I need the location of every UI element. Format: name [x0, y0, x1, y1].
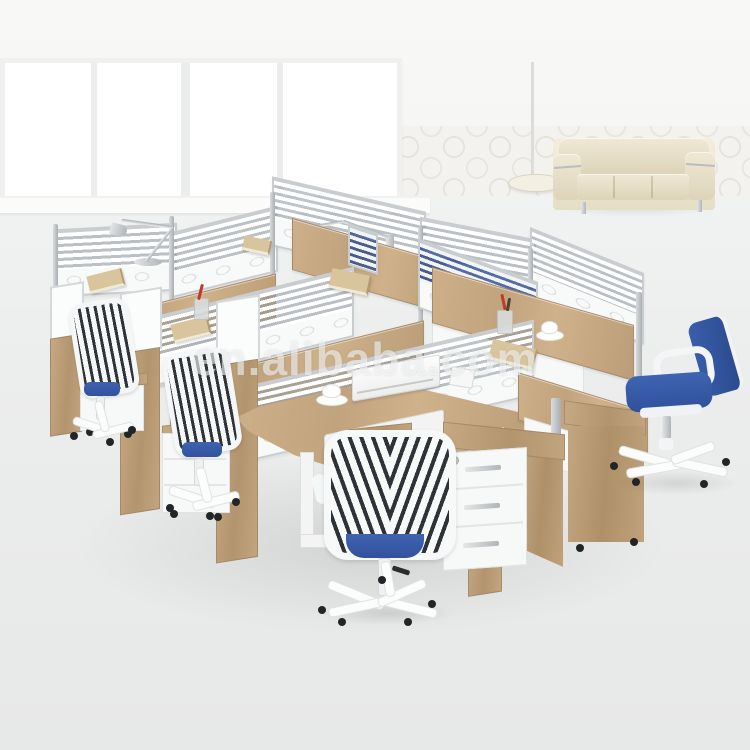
chair-lever: [392, 565, 411, 575]
caster: [378, 576, 386, 584]
pen-cup: [194, 298, 209, 320]
coffee-cup: [541, 321, 558, 334]
chair-seat: [346, 534, 424, 558]
lamp-head: [109, 222, 128, 238]
chair-stem-cover: [659, 438, 673, 450]
floor-lamp-pole: [531, 62, 534, 180]
lamp-arm: [145, 226, 174, 263]
lamp-arm: [121, 219, 173, 229]
coffee-cup: [322, 384, 341, 398]
task-chair-blue: [610, 312, 740, 502]
sofa-seam: [651, 176, 653, 198]
caster: [610, 462, 618, 470]
window-mullion: [91, 63, 97, 199]
sofa-seam: [613, 176, 615, 198]
caster: [576, 544, 584, 552]
sofa: [553, 138, 715, 210]
caster: [232, 498, 240, 506]
caster: [206, 512, 214, 520]
caster: [128, 426, 136, 434]
caster: [404, 618, 412, 626]
sofa-leg: [581, 202, 586, 214]
chair-seat: [84, 382, 120, 396]
caster: [70, 432, 78, 440]
watermark-text: en.alibaba.com: [192, 332, 538, 386]
three-drawer-pedestal: [443, 428, 567, 570]
sofa-leg: [697, 200, 702, 212]
desk-lamp-left: [96, 196, 192, 272]
caster: [722, 458, 730, 466]
caster: [166, 504, 174, 512]
caster: [338, 618, 346, 626]
pen-cup: [497, 310, 513, 334]
caster: [106, 438, 114, 446]
caster: [318, 606, 326, 614]
window-mullion: [181, 63, 190, 199]
task-chair-white: [70, 298, 160, 446]
window: [0, 58, 402, 214]
product-photo-scene: en.alibaba.com: [0, 0, 750, 750]
caster: [632, 478, 640, 486]
sofa-armrest-right: [685, 152, 715, 200]
sofa-seat-cushions: [577, 174, 689, 200]
task-chair-front: [312, 430, 458, 626]
caster: [428, 600, 436, 608]
caster: [700, 480, 708, 488]
chair-seat: [182, 442, 222, 457]
caster: [630, 538, 638, 546]
